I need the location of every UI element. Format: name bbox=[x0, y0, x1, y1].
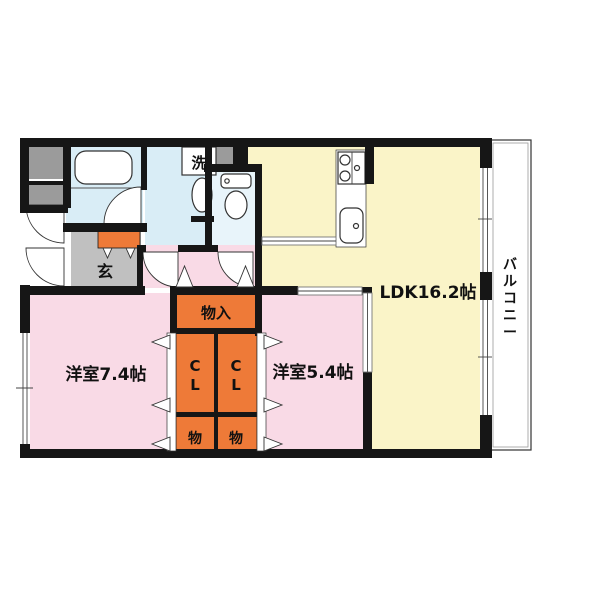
door-swing-icon-entry-lower bbox=[26, 248, 64, 286]
balcony-char: ー bbox=[503, 325, 517, 341]
wall-segment bbox=[170, 286, 177, 333]
wall-segment bbox=[20, 205, 68, 213]
pipe-space bbox=[28, 185, 63, 207]
wall-segment bbox=[178, 245, 218, 252]
window-right-lower bbox=[480, 300, 491, 415]
wall-segment bbox=[204, 164, 262, 172]
balcony-char: ル bbox=[503, 274, 517, 290]
label-closet-right-l: L bbox=[231, 376, 241, 394]
kitchen-sink-icon bbox=[340, 208, 363, 243]
label-closet-right-c: C bbox=[230, 357, 241, 375]
balcony-char: ニ bbox=[503, 308, 517, 324]
wall-segment bbox=[28, 181, 63, 185]
closet-track bbox=[257, 333, 266, 451]
window-left bbox=[19, 333, 30, 444]
faucet-icon bbox=[354, 224, 359, 229]
wall-segment bbox=[20, 286, 145, 295]
label-ldk: LDK16.2帖 bbox=[379, 282, 476, 303]
wall-segment bbox=[480, 415, 492, 458]
wall-segment bbox=[168, 412, 262, 417]
wall-segment bbox=[365, 140, 374, 184]
floor-plan: LDK16.2帖 洋室7.4帖 洋室5.4帖 玄 洗 物入 C L C L 物 … bbox=[0, 0, 600, 600]
wall-segment bbox=[480, 138, 492, 168]
wall-segment bbox=[20, 449, 492, 458]
balcony-char: コ bbox=[503, 291, 517, 307]
toilet-knob-icon bbox=[225, 179, 229, 183]
wall-segment bbox=[137, 245, 143, 288]
wall-segment bbox=[214, 333, 218, 451]
label-closet-left-c: C bbox=[189, 357, 200, 375]
label-entrance: 玄 bbox=[97, 262, 113, 281]
floor-plan-image: LDK16.2帖 洋室7.4帖 洋室5.4帖 玄 洗 物入 C L C L 物 … bbox=[0, 0, 600, 600]
wall-segment bbox=[20, 138, 492, 147]
label-closet-left-l: L bbox=[190, 376, 200, 394]
bathtub-icon bbox=[75, 151, 132, 184]
label-balcony: バ ル コ ニ ー bbox=[503, 257, 517, 341]
wall-segment bbox=[63, 223, 147, 232]
label-storage-left: 物 bbox=[188, 430, 202, 447]
meter-box bbox=[28, 146, 63, 179]
window-right-upper bbox=[480, 168, 491, 272]
stove-burner-icon bbox=[340, 155, 350, 165]
label-storage-right: 物 bbox=[229, 430, 243, 447]
label-laundry: 洗 bbox=[191, 154, 206, 172]
wall-segment bbox=[63, 146, 71, 208]
wall-segment bbox=[141, 146, 147, 190]
wall-segment bbox=[480, 272, 492, 300]
stove-knob-icon bbox=[355, 166, 360, 171]
stove-burner-icon bbox=[340, 171, 350, 181]
toilet-bowl-icon bbox=[225, 191, 247, 219]
label-storage-main: 物入 bbox=[201, 304, 231, 322]
wall-segment bbox=[233, 138, 248, 165]
label-bedroom-right: 洋室5.4帖 bbox=[272, 362, 353, 383]
label-bedroom-left: 洋室7.4帖 bbox=[65, 364, 146, 385]
wall-segment bbox=[363, 372, 372, 449]
closet-track bbox=[167, 333, 176, 451]
wall-segment bbox=[20, 138, 29, 205]
wall-segment bbox=[255, 164, 262, 336]
wall-segment bbox=[20, 444, 30, 458]
balcony-char: バ bbox=[503, 257, 517, 273]
